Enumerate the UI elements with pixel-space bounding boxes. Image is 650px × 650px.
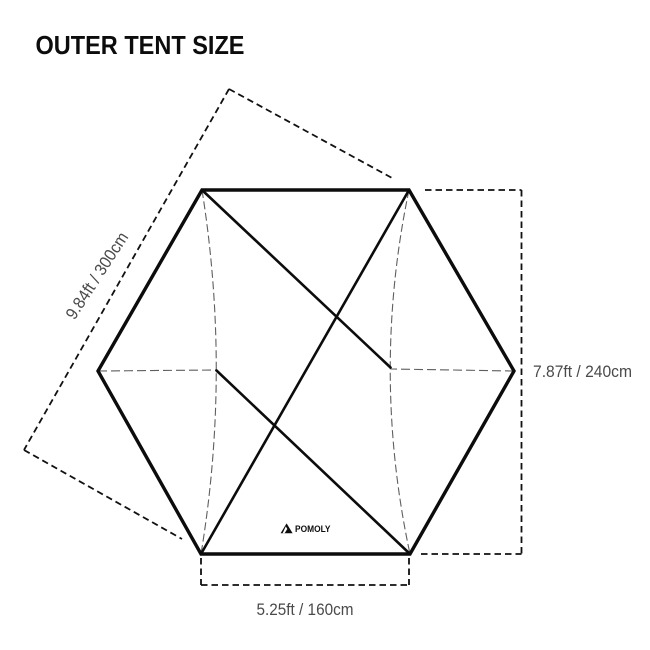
svg-text:7.87ft / 240cm: 7.87ft / 240cm <box>533 362 632 381</box>
svg-text:5.25ft / 160cm: 5.25ft / 160cm <box>257 600 354 619</box>
svg-text:OUTER TENT SIZE: OUTER TENT SIZE <box>36 32 245 60</box>
svg-text:9.84ft / 300cm: 9.84ft / 300cm <box>62 229 132 323</box>
svg-text:POMOLY: POMOLY <box>295 524 331 535</box>
